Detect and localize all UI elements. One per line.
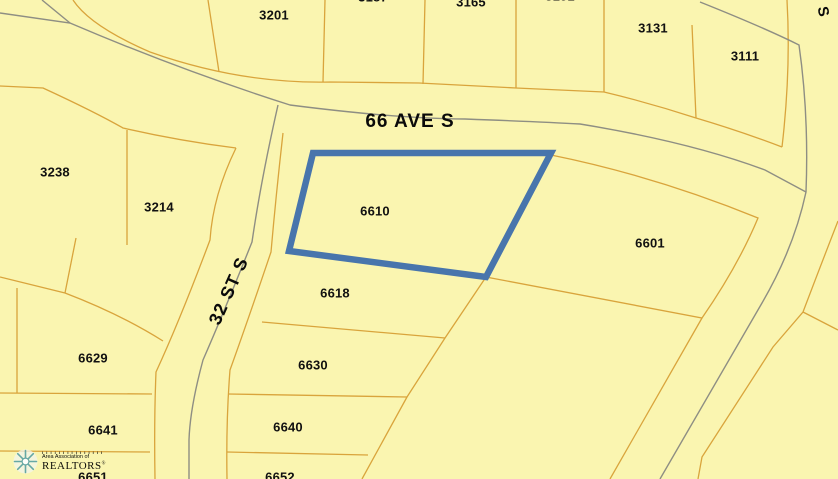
parcel-label-3131: 3131 — [638, 21, 668, 36]
parcel-label-6629: 6629 — [78, 351, 108, 366]
parcel-line — [323, 0, 325, 82]
parcel-label-3238: 3238 — [40, 165, 70, 180]
parcel-line — [208, 0, 219, 72]
parcel-line — [65, 238, 76, 293]
parcel-line — [610, 318, 702, 479]
parcel-label-6640: 6640 — [273, 420, 303, 435]
parcel-label-6652: 6652 — [265, 470, 295, 479]
parcel-line — [803, 312, 838, 330]
realtor-association-logo: I I I I I I I I I I I I I I I Area Assoc… — [12, 448, 106, 475]
parcel-line — [0, 86, 236, 148]
parcel-boundaries — [0, 0, 838, 479]
parcel-line — [227, 452, 368, 455]
street-label-66-ave-s: 66 AVE S — [365, 111, 454, 133]
parcel-label-3187: 3187 — [358, 0, 388, 5]
parcel-line — [362, 277, 486, 479]
parcel-line — [228, 394, 407, 397]
parcel-line — [262, 322, 445, 338]
parcel-map[interactable]: 3201318731653151313131113238321466106601… — [0, 0, 838, 479]
registered-trademark-symbol: ® — [102, 461, 106, 466]
parcel-label-3201: 3201 — [259, 8, 289, 23]
parcel-label-6610: 6610 — [360, 204, 390, 219]
parcel-line — [423, 0, 425, 84]
highlighted-parcel-outline[interactable] — [289, 153, 551, 277]
parcel-line — [486, 155, 758, 318]
parcel-label-6618: 6618 — [320, 286, 350, 301]
parcel-label-6641: 6641 — [88, 423, 118, 438]
parcel-label-3165: 3165 — [456, 0, 486, 10]
parcel-label-6630: 6630 — [298, 358, 328, 373]
logo-realtors-wordmark: REALTORS® — [42, 461, 106, 473]
parcel-line — [782, 0, 788, 147]
snowflake-logo-icon — [12, 448, 39, 475]
road-line-66-ave-s — [0, 13, 806, 192]
parcel-label-6601: 6601 — [635, 236, 665, 251]
parcel-label-3111: 3111 — [731, 49, 759, 64]
parcel-line — [692, 25, 696, 118]
parcel-label-3151: 3151 — [545, 0, 575, 4]
parcel-label-3214: 3214 — [144, 200, 174, 215]
road-lines — [0, 0, 807, 479]
parcel-line — [698, 221, 838, 479]
parcel-line — [0, 277, 163, 341]
map-lines-layer — [0, 0, 838, 479]
parcel-line — [0, 393, 152, 394]
